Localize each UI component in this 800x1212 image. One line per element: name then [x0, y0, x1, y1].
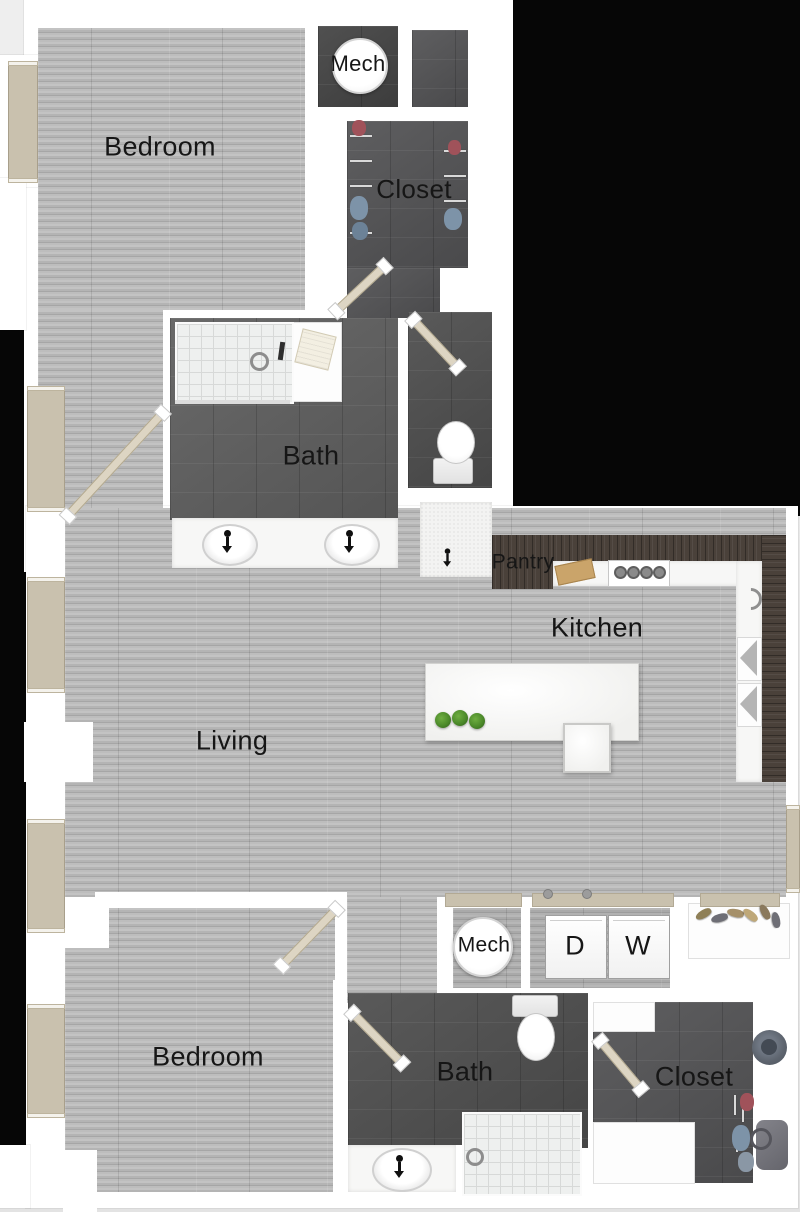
wall-mech-top-bottom [318, 107, 412, 121]
sink [372, 1148, 432, 1192]
closet-dresser [593, 1122, 695, 1184]
room-label-bath-top: Bath [283, 443, 340, 470]
clothes-icon [448, 140, 461, 155]
hat-icon [752, 1030, 787, 1065]
utility-counter [420, 502, 492, 577]
outside-area-top-right [513, 0, 800, 516]
hanger-icon [350, 185, 372, 187]
burner-icon [653, 566, 666, 579]
shower [175, 322, 294, 404]
window [27, 1005, 65, 1117]
room-label-washer: W [625, 933, 651, 960]
toilet [517, 1013, 555, 1061]
clothes-icon [352, 120, 366, 136]
window [27, 820, 65, 932]
clothes-icon [352, 222, 368, 240]
window [786, 806, 800, 892]
shower-glass [175, 400, 290, 404]
window-sill [445, 893, 522, 907]
burner-icon [640, 566, 653, 579]
room-label-mech-top: Mech [331, 53, 386, 75]
floor-plan: Bedroom Mech Closet Bath Pantry Kitchen … [0, 0, 800, 1212]
duffel-bag-icon [756, 1120, 788, 1170]
window [27, 578, 65, 692]
plant-icon [469, 713, 485, 729]
hanger-icon [350, 160, 372, 162]
faucet-icon [348, 537, 351, 547]
plant-icon [435, 712, 451, 728]
wall-left-bump [0, 178, 26, 330]
kitchen-counter-top [553, 535, 786, 561]
door-knob-icon [582, 889, 592, 899]
kitchen-counter-right [762, 535, 786, 782]
island-seat [563, 723, 611, 773]
clothes-icon [350, 196, 368, 220]
door-knob-icon [543, 889, 553, 899]
wall-bedroom-bottom-corner [63, 905, 109, 948]
faucet-icon [446, 554, 448, 562]
burner-icon [614, 566, 627, 579]
window-sill [532, 893, 674, 907]
room-label-mech-bottom: Mech [458, 935, 511, 956]
window [8, 62, 38, 182]
wall-bedroom-bottom-top [95, 892, 347, 905]
room-label-closet-top: Closet [376, 176, 452, 202]
wall-living-left-notch [24, 722, 93, 782]
room-label-bedroom-bottom: Bedroom [152, 1044, 264, 1071]
faucet-icon [226, 537, 229, 547]
clothes-icon [732, 1125, 750, 1151]
bedroom-top-floor [38, 28, 305, 310]
toilet [437, 421, 475, 464]
room-label-dryer: D [565, 933, 585, 960]
closet-shelf [593, 1002, 655, 1032]
plant-icon [452, 710, 468, 726]
room-label-pantry: Pantry [492, 552, 555, 573]
clothes-icon [738, 1152, 754, 1172]
closet-top-room-upper [412, 30, 468, 107]
shower-head-icon [466, 1148, 484, 1166]
hanger-icon [734, 1095, 736, 1115]
wall-bedroom-bottom-left-step [63, 1150, 97, 1212]
room-label-closet-bottom: Closet [655, 1064, 733, 1091]
window [27, 387, 65, 511]
corner-shelf [737, 683, 762, 727]
outside-area-left [0, 330, 26, 1145]
clothes-icon [444, 208, 462, 230]
corner-shelf [737, 637, 762, 681]
window-sill [700, 893, 780, 907]
clothes-icon [740, 1093, 754, 1111]
room-label-living: Living [196, 728, 268, 755]
burner-icon [627, 566, 640, 579]
faucet-icon [398, 1162, 401, 1172]
shower-head-icon [250, 352, 269, 371]
hallway-floor [347, 897, 437, 1003]
room-label-kitchen: Kitchen [551, 615, 643, 642]
wall-slab-bottom-left [0, 1145, 30, 1208]
room-label-bedroom-top: Bedroom [104, 134, 216, 161]
room-label-bath-bottom: Bath [437, 1059, 494, 1086]
